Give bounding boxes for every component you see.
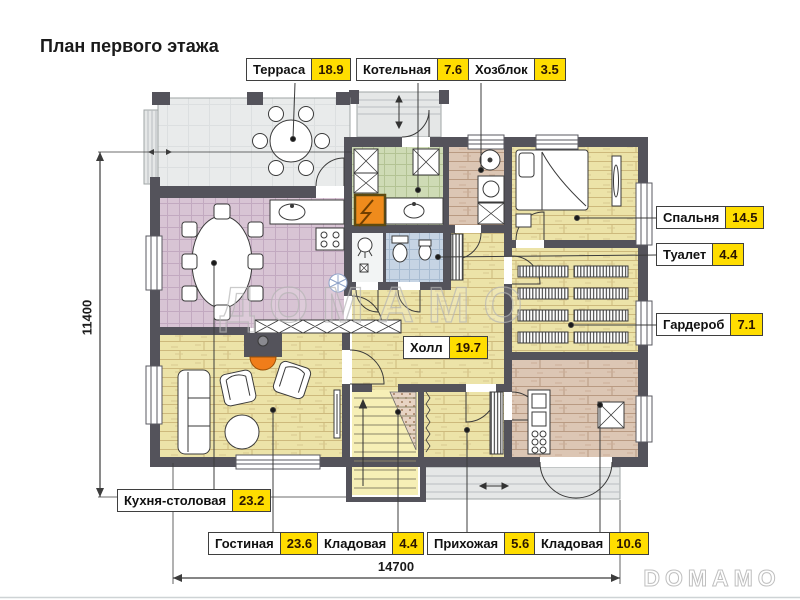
room-label-kitchen-dining: Кухня-столовая23.2 (117, 489, 271, 512)
sofa (178, 370, 210, 454)
room-name: Хозблок (469, 59, 534, 80)
room-name: Гардероб (657, 314, 730, 335)
room-area: 7.6 (437, 59, 468, 80)
dimension-width: 14700 (336, 559, 456, 574)
watermark-center: ДОМАМО (220, 277, 537, 333)
entry-wardrobe (490, 392, 503, 454)
room-name: Котельная (357, 59, 437, 80)
entrance-porch (424, 467, 620, 499)
room-area: 14.5 (725, 207, 763, 228)
room-area: 19.7 (449, 337, 487, 358)
room-name: Прихожая (428, 533, 504, 554)
room-label-boiler: Котельная7.6 (356, 58, 469, 81)
page-title: План первого этажа (40, 36, 219, 57)
room-label-toilet: Туалет4.4 (656, 243, 744, 266)
room-label-wardrobe: Гардероб7.1 (656, 313, 763, 336)
room-label-entry-hall: Прихожая5.6 (427, 532, 536, 555)
watermark-corner: DOMAMO (643, 565, 780, 591)
room-area: 18.9 (311, 59, 349, 80)
room-name: Кухня-столовая (118, 490, 232, 511)
room-name: Кладовая (535, 533, 609, 554)
room-label-storage-small: Кладовая4.4 (317, 532, 424, 555)
room-label-hall: Холл19.7 (403, 336, 488, 359)
boiler-entry-porch (349, 90, 449, 137)
room-label-terrace: Терраса18.9 (246, 58, 351, 81)
room-area: 23.6 (280, 533, 318, 554)
room-label-bedroom: Спальня14.5 (656, 206, 764, 229)
room-area: 4.4 (712, 244, 743, 265)
floor-plan-page: ДОМАМО DOMAMO План первого этажа Терраса… (0, 0, 800, 600)
room-label-living: Гостиная23.6 (208, 532, 319, 555)
armchair (219, 369, 257, 407)
room-name: Терраса (247, 59, 311, 80)
room-label-storage-large: Кладовая10.6 (534, 532, 649, 555)
room-name: Гостиная (209, 533, 280, 554)
room-area: 23.2 (232, 490, 270, 511)
room-name: Туалет (657, 244, 712, 265)
room-area: 10.6 (609, 533, 647, 554)
utility-fixtures (478, 150, 504, 224)
room-area: 7.1 (730, 314, 761, 335)
tv-panel (334, 390, 340, 438)
room-area: 5.6 (504, 533, 535, 554)
room-area: 3.5 (534, 59, 565, 80)
dimension-height: 11400 (80, 287, 95, 349)
room-area: 4.4 (392, 533, 423, 554)
room-name: Спальня (657, 207, 725, 228)
coffee-table (225, 415, 259, 449)
room-label-utility: Хозблок3.5 (468, 58, 566, 81)
furnace-icon (355, 195, 385, 226)
room-name: Холл (404, 337, 449, 358)
room-name: Кладовая (318, 533, 392, 554)
